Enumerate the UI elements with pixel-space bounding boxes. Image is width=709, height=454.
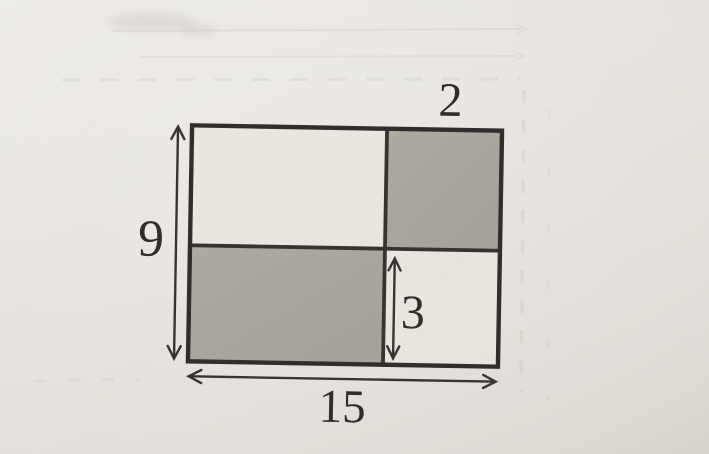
geometry-figure: 9 15 2 3 [0,0,709,454]
cell-top-left [190,125,387,248]
photographed-page: 9 15 2 3 [0,0,709,454]
height-label: 9 [138,210,165,267]
shaded-cell-top-right [385,129,502,251]
height-dimension-arrow [168,126,185,358]
shaded-cell-bottom-left [188,245,385,364]
width-label: 15 [318,381,366,434]
right-section-label: 2 [438,74,463,127]
inner-height-label: 3 [400,286,425,339]
